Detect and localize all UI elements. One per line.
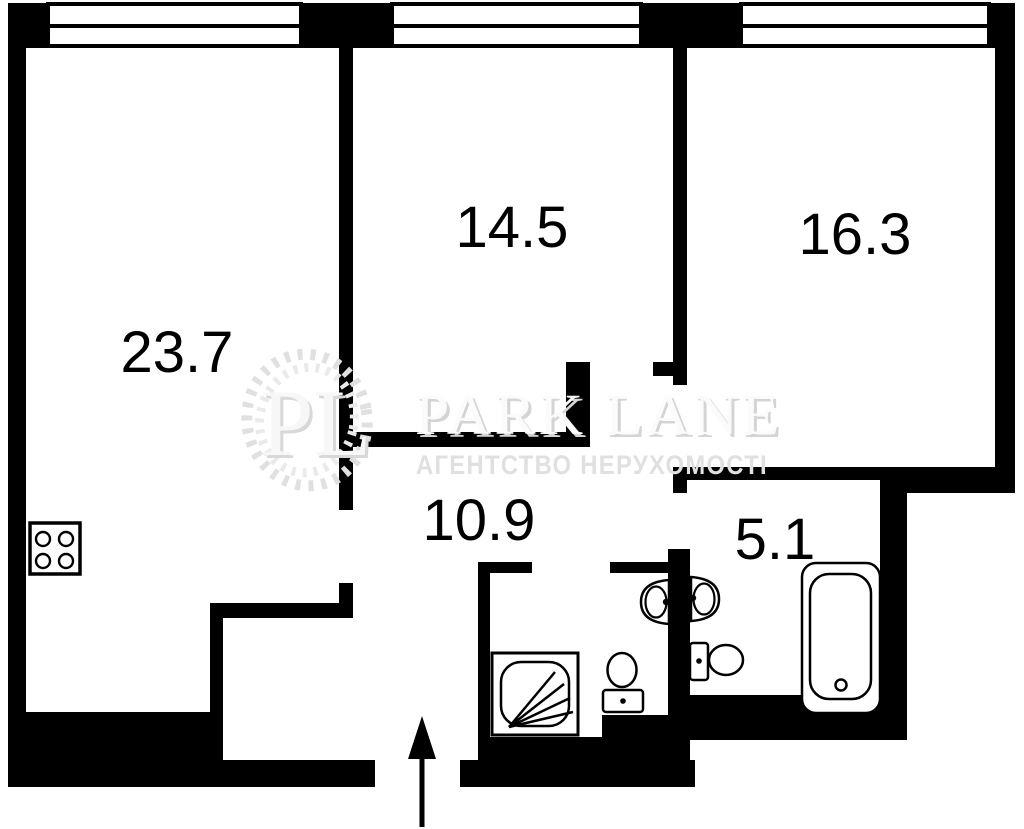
wall-segment <box>490 737 602 787</box>
wall-segment <box>8 3 26 787</box>
room-area-label: 5.1 <box>735 507 816 572</box>
watermark-monogram: PL <box>261 370 372 476</box>
wall-segment <box>673 48 687 385</box>
watermark: PL PL PARK LANE PARK LANE АГЕНТСТВО НЕРУ… <box>236 345 785 496</box>
wall-segment <box>478 562 490 787</box>
shower-icon <box>492 653 578 735</box>
wall-segment <box>610 562 672 573</box>
bathtub-icon <box>802 563 880 713</box>
wall-segment <box>653 362 673 376</box>
sink-icon <box>690 577 719 621</box>
window-icon <box>741 4 989 46</box>
windows <box>48 4 989 46</box>
room-area-label: 23.7 <box>121 320 234 385</box>
window-icon <box>392 4 641 46</box>
room-area-label: 10.9 <box>423 488 536 553</box>
stove-icon <box>30 523 80 574</box>
entrance-arrow-icon <box>408 716 436 827</box>
watermark-brand: PARK LANE <box>415 382 782 447</box>
wall-segment <box>210 603 223 760</box>
window-icon <box>48 4 301 46</box>
wall-segment <box>668 549 690 719</box>
room-area-label: 16.3 <box>799 202 912 267</box>
sink-icon <box>641 580 669 624</box>
wall-segment <box>210 603 350 618</box>
room-area-label: 14.5 <box>456 195 569 260</box>
wall-segment <box>602 715 690 787</box>
floor-plan: 23.7 14.5 16.3 10.9 5.1 PL PL PARK LANE … <box>0 0 1024 829</box>
wall-segment <box>210 760 375 787</box>
floor-plan-page: 23.7 14.5 16.3 10.9 5.1 PL PL PARK LANE … <box>0 0 1024 829</box>
watermark-tagline: АГЕНТСТВО НЕРУХОМОСТІ <box>416 450 768 480</box>
toilet-icon <box>603 653 643 712</box>
toilet-icon <box>690 643 743 680</box>
wall-segment <box>8 712 210 787</box>
wall-segment <box>995 3 1015 493</box>
